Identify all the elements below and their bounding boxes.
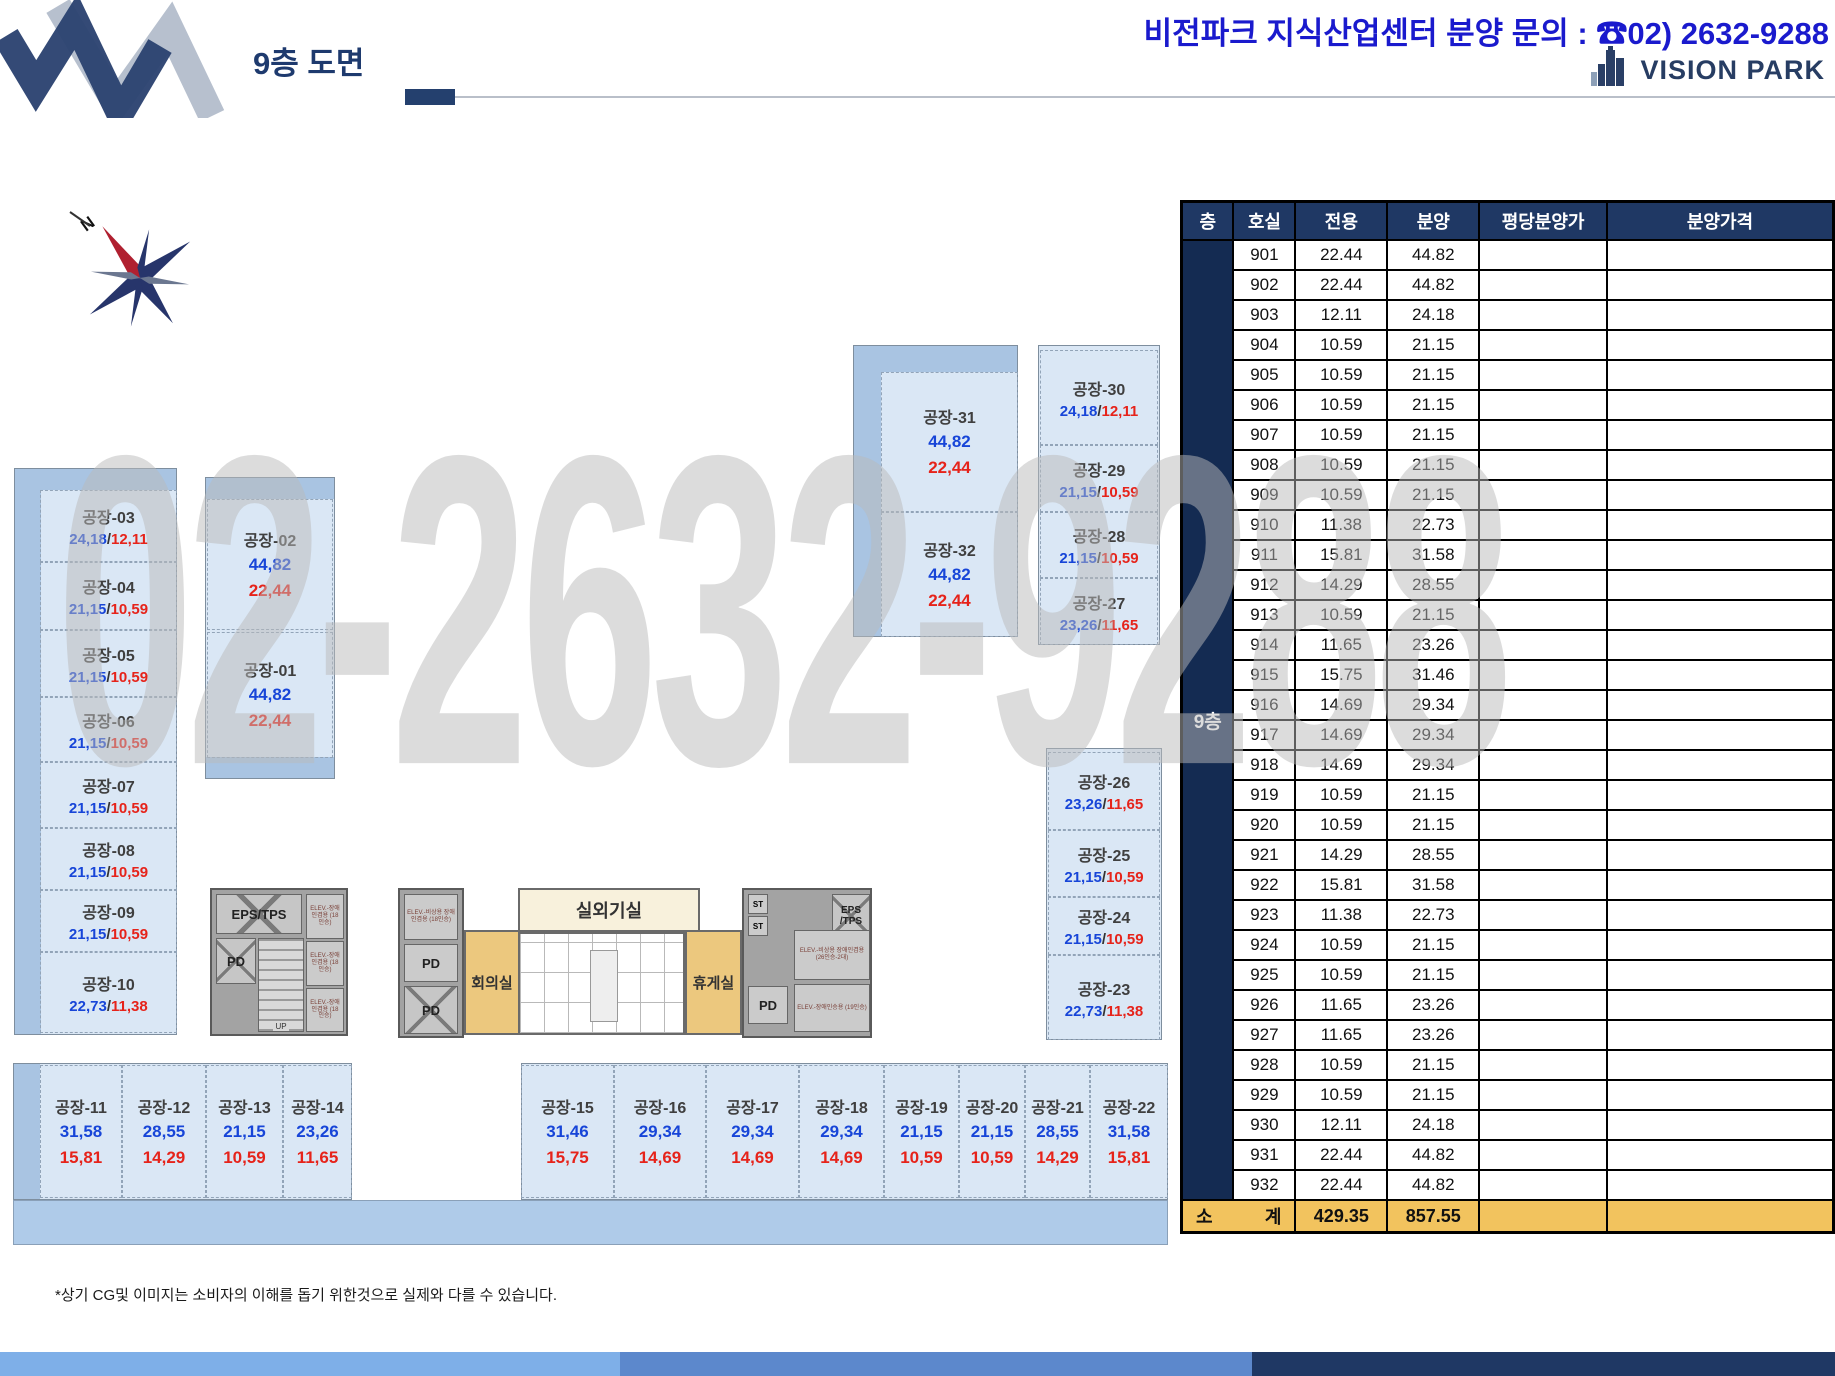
cell-room: 903 bbox=[1233, 300, 1295, 330]
room-supply-area: 21,15 bbox=[223, 1121, 266, 1144]
room-label: 공장-27 bbox=[1073, 590, 1126, 614]
cell-blank bbox=[1479, 990, 1607, 1020]
cell-supply: 31.58 bbox=[1387, 540, 1479, 570]
cell-exclusive: 15.75 bbox=[1295, 660, 1387, 690]
cell-supply: 21.15 bbox=[1387, 480, 1479, 510]
room-label: 공장-15 bbox=[541, 1094, 594, 1118]
table-row: 91814.6929.34 bbox=[1182, 750, 1834, 780]
cell-exclusive: 10.59 bbox=[1295, 780, 1387, 810]
cell-exclusive: 11.65 bbox=[1295, 990, 1387, 1020]
cell-supply: 21.15 bbox=[1387, 390, 1479, 420]
restroom-area bbox=[518, 932, 685, 1035]
room-label: 공장-08 bbox=[82, 837, 135, 861]
room-exclusive-area: 10,59 bbox=[900, 1147, 943, 1170]
cell-exclusive: 10.59 bbox=[1295, 450, 1387, 480]
room-unit-19: 공장-1921,1510,59 bbox=[884, 1065, 959, 1198]
cell-blank bbox=[1479, 330, 1607, 360]
table-row: 93012.1124.18 bbox=[1182, 1110, 1834, 1140]
cell-blank bbox=[1607, 1170, 1834, 1200]
room-exclusive-area: 14,69 bbox=[820, 1147, 863, 1170]
cell-blank bbox=[1607, 780, 1834, 810]
room-label: 공장-14 bbox=[291, 1094, 344, 1118]
room-exclusive-area: 11,65 bbox=[297, 1147, 339, 1170]
cell-supply: 21.15 bbox=[1387, 360, 1479, 390]
cell-room: 905 bbox=[1233, 360, 1295, 390]
room-areas: 21,15/10,59 bbox=[1059, 550, 1138, 567]
table-row: 9층90122.4444.82 bbox=[1182, 240, 1834, 270]
elevator-label: ELEV.-장애인겸용 (18인승) bbox=[307, 904, 343, 929]
cell-exclusive: 14.29 bbox=[1295, 840, 1387, 870]
room-areas: 21,15/10,59 bbox=[69, 601, 148, 618]
total-supply: 857.55 bbox=[1387, 1200, 1479, 1233]
cell-blank bbox=[1607, 690, 1834, 720]
room-unit-08: 공장-0821,15/10,59 bbox=[40, 828, 177, 890]
room-exclusive-area: 10,59 bbox=[223, 1147, 266, 1170]
compass-icon: N bbox=[48, 200, 218, 335]
cell-room: 920 bbox=[1233, 810, 1295, 840]
cell-supply: 21.15 bbox=[1387, 930, 1479, 960]
cell-blank bbox=[1607, 570, 1834, 600]
cell-exclusive: 11.38 bbox=[1295, 900, 1387, 930]
cell-exclusive: 14.69 bbox=[1295, 720, 1387, 750]
cell-blank bbox=[1607, 420, 1834, 450]
room-label: 공장-18 bbox=[815, 1094, 868, 1118]
cell-supply: 44.82 bbox=[1387, 240, 1479, 270]
cell-room: 918 bbox=[1233, 750, 1295, 780]
col-price-per-py: 평당분양가 bbox=[1479, 202, 1607, 241]
cell-supply: 21.15 bbox=[1387, 420, 1479, 450]
room-label: 공장-09 bbox=[82, 899, 135, 923]
room-label: 공장-32 bbox=[923, 537, 976, 561]
table-row: 90910.5921.15 bbox=[1182, 480, 1834, 510]
room-label: 공장-17 bbox=[726, 1094, 779, 1118]
cell-blank bbox=[1607, 540, 1834, 570]
eps-tps-label: EPS/TPS bbox=[232, 907, 287, 922]
cell-room: 927 bbox=[1233, 1020, 1295, 1050]
table-row: 91714.6929.34 bbox=[1182, 720, 1834, 750]
room-supply-area: 21,15 bbox=[971, 1121, 1014, 1144]
room-exclusive-area: 14,69 bbox=[639, 1147, 682, 1170]
bottom-corridor bbox=[13, 1200, 1168, 1245]
room-unit-02: 공장-0244,8222,44 bbox=[207, 499, 333, 630]
cell-room: 931 bbox=[1233, 1140, 1295, 1170]
cell-blank bbox=[1479, 840, 1607, 870]
room-areas: 23,26/11,65 bbox=[1060, 617, 1138, 634]
room-label: 공장-06 bbox=[82, 708, 135, 732]
cell-blank bbox=[1479, 600, 1607, 630]
total-exclusive: 429.35 bbox=[1295, 1200, 1387, 1233]
room-exclusive-area: 14,29 bbox=[1036, 1147, 1079, 1170]
room-areas: 21,15/10,59 bbox=[69, 669, 148, 686]
cell-supply: 28.55 bbox=[1387, 570, 1479, 600]
cell-blank bbox=[1607, 990, 1834, 1020]
room-unit-32: 공장-3244,8222,44 bbox=[881, 512, 1018, 637]
cell-room: 919 bbox=[1233, 780, 1295, 810]
cell-supply: 44.82 bbox=[1387, 1170, 1479, 1200]
cell-blank bbox=[1479, 1080, 1607, 1110]
table-header-row: 층 호실 전용 분양 평당분양가 분양가격 bbox=[1182, 202, 1834, 241]
cell-blank bbox=[1607, 600, 1834, 630]
cell-exclusive: 14.69 bbox=[1295, 690, 1387, 720]
disclaimer-note: *상기 CG및 이미지는 소비자의 이해를 돕기 위한것으로 실제와 다를 수 … bbox=[55, 1284, 557, 1305]
cell-exclusive: 10.59 bbox=[1295, 420, 1387, 450]
room-unit-04: 공장-0421,15/10,59 bbox=[40, 562, 177, 630]
table-row: 90510.5921.15 bbox=[1182, 360, 1834, 390]
cell-exclusive: 12.11 bbox=[1295, 300, 1387, 330]
table-row: 90610.5921.15 bbox=[1182, 390, 1834, 420]
cell-exclusive: 22.44 bbox=[1295, 270, 1387, 300]
room-unit-05: 공장-0521,15/10,59 bbox=[40, 630, 177, 697]
room-unit-16: 공장-1629,3414,69 bbox=[614, 1065, 706, 1198]
meeting-room: 회의실 bbox=[464, 930, 520, 1035]
cell-blank bbox=[1607, 1080, 1834, 1110]
room-exclusive-area: 22,44 bbox=[928, 457, 971, 480]
cell-blank bbox=[1607, 960, 1834, 990]
room-label: 공장-05 bbox=[82, 642, 135, 666]
eps-tps-label: EPS /TPS bbox=[833, 905, 869, 927]
cell-supply: 22.73 bbox=[1387, 900, 1479, 930]
cell-blank bbox=[1607, 840, 1834, 870]
room-label: 공장-02 bbox=[244, 527, 297, 551]
cell-room: 901 bbox=[1233, 240, 1295, 270]
room-unit-27: 공장-2723,26/11,65 bbox=[1040, 578, 1158, 645]
cell-blank bbox=[1607, 1050, 1834, 1080]
pd-label: PD bbox=[422, 1003, 440, 1018]
cell-blank bbox=[1479, 720, 1607, 750]
cell-supply: 23.26 bbox=[1387, 630, 1479, 660]
room-exclusive-area: 22,44 bbox=[928, 590, 971, 613]
room-unit-31: 공장-3144,8222,44 bbox=[881, 372, 1018, 512]
room-unit-21: 공장-2128,5514,29 bbox=[1025, 1065, 1090, 1198]
cell-exclusive: 10.59 bbox=[1295, 810, 1387, 840]
cell-exclusive: 11.38 bbox=[1295, 510, 1387, 540]
room-areas: 21,15/10,59 bbox=[69, 800, 148, 817]
col-floor: 층 bbox=[1182, 202, 1234, 241]
cell-room: 910 bbox=[1233, 510, 1295, 540]
room-areas: 21,15/10,59 bbox=[69, 864, 148, 881]
col-supply: 분양 bbox=[1387, 202, 1479, 241]
cell-blank bbox=[1607, 480, 1834, 510]
table-row: 92711.6523.26 bbox=[1182, 1020, 1834, 1050]
cell-room: 904 bbox=[1233, 330, 1295, 360]
room-label: 공장-24 bbox=[1078, 904, 1131, 928]
table-row: 92215.8131.58 bbox=[1182, 870, 1834, 900]
room-unit-07: 공장-0721,15/10,59 bbox=[40, 762, 177, 828]
elevator-label: ELEV.-장애인겸용 (18인승) bbox=[307, 998, 343, 1023]
cell-supply: 31.46 bbox=[1387, 660, 1479, 690]
cell-blank bbox=[1607, 270, 1834, 300]
elevator-label: ELEV.-비상용 장애인겸용 (18인승) bbox=[405, 908, 457, 926]
cell-supply: 23.26 bbox=[1387, 1020, 1479, 1050]
room-unit-30: 공장-3024,18/12,11 bbox=[1040, 350, 1158, 445]
cell-blank bbox=[1479, 270, 1607, 300]
cell-supply: 21.15 bbox=[1387, 810, 1479, 840]
cell-supply: 28.55 bbox=[1387, 840, 1479, 870]
table-row: 91011.3822.73 bbox=[1182, 510, 1834, 540]
cell-blank bbox=[1607, 1110, 1834, 1140]
room-areas: 21,15/10,59 bbox=[1064, 869, 1143, 886]
cell-blank bbox=[1607, 930, 1834, 960]
cell-exclusive: 15.81 bbox=[1295, 870, 1387, 900]
outdoor-unit-room: 실외기실 bbox=[518, 888, 700, 932]
room-areas: 21,15/10,59 bbox=[69, 926, 148, 943]
total-label: 소계 bbox=[1182, 1200, 1296, 1233]
cell-room: 916 bbox=[1233, 690, 1295, 720]
cell-supply: 44.82 bbox=[1387, 1140, 1479, 1170]
bottom-bar-light bbox=[0, 1352, 620, 1376]
table-row: 91214.2928.55 bbox=[1182, 570, 1834, 600]
room-exclusive-area: 15,81 bbox=[1108, 1147, 1151, 1170]
pd-label: PD bbox=[759, 998, 777, 1013]
st-label: ST bbox=[753, 900, 763, 909]
cell-exclusive: 10.59 bbox=[1295, 330, 1387, 360]
cell-blank bbox=[1607, 510, 1834, 540]
cell-supply: 21.15 bbox=[1387, 600, 1479, 630]
room-label: 공장-26 bbox=[1078, 769, 1131, 793]
cell-room: 906 bbox=[1233, 390, 1295, 420]
stairs-up-label: UP bbox=[273, 1022, 288, 1031]
cell-exclusive: 11.65 bbox=[1295, 1020, 1387, 1050]
core-left: EPS/TPS PD UP ELEV.-장애인겸용 (18인승) ELEV.-장… bbox=[210, 888, 348, 1036]
cell-blank bbox=[1607, 630, 1834, 660]
table-row: 93222.4444.82 bbox=[1182, 1170, 1834, 1200]
cell-blank bbox=[1479, 900, 1607, 930]
cell-supply: 44.82 bbox=[1387, 270, 1479, 300]
room-areas: 24,18/12,11 bbox=[1060, 403, 1138, 420]
cell-room: 922 bbox=[1233, 870, 1295, 900]
cell-blank bbox=[1607, 1140, 1834, 1170]
room-areas: 22,73/11,38 bbox=[69, 998, 147, 1015]
room-label: 공장-13 bbox=[218, 1094, 271, 1118]
core-mid-left: ELEV.-비상용 장애인겸용 (18인승) PD PD bbox=[398, 888, 464, 1038]
cell-blank bbox=[1479, 540, 1607, 570]
st-label: ST bbox=[753, 922, 763, 931]
room-unit-14: 공장-1423,2611,65 bbox=[283, 1065, 352, 1198]
room-areas: 21,15/10,59 bbox=[1064, 931, 1143, 948]
cell-blank bbox=[1479, 1140, 1607, 1170]
cell-blank bbox=[1479, 360, 1607, 390]
cell-supply: 22.73 bbox=[1387, 510, 1479, 540]
cell-supply: 21.15 bbox=[1387, 450, 1479, 480]
room-supply-area: 29,34 bbox=[820, 1121, 863, 1144]
cell-blank bbox=[1479, 810, 1607, 840]
cell-room: 915 bbox=[1233, 660, 1295, 690]
room-supply-area: 21,15 bbox=[900, 1121, 943, 1144]
title-rule bbox=[408, 96, 1835, 98]
bottom-bar-medium bbox=[620, 1352, 1252, 1376]
total-blank bbox=[1479, 1200, 1607, 1233]
cell-exclusive: 10.59 bbox=[1295, 360, 1387, 390]
table-row: 91910.5921.15 bbox=[1182, 780, 1834, 810]
room-supply-area: 29,34 bbox=[731, 1121, 774, 1144]
table-row: 90710.5921.15 bbox=[1182, 420, 1834, 450]
table-row: 92810.5921.15 bbox=[1182, 1050, 1834, 1080]
cell-blank bbox=[1479, 390, 1607, 420]
table-row: 91310.5921.15 bbox=[1182, 600, 1834, 630]
cell-blank bbox=[1479, 1110, 1607, 1140]
room-supply-area: 44,82 bbox=[249, 554, 292, 577]
table-row: 92010.5921.15 bbox=[1182, 810, 1834, 840]
cell-blank bbox=[1479, 1020, 1607, 1050]
cell-room: 929 bbox=[1233, 1080, 1295, 1110]
cell-blank bbox=[1479, 870, 1607, 900]
room-supply-area: 31,58 bbox=[60, 1121, 103, 1144]
room-areas: 23,26/11,65 bbox=[1065, 796, 1143, 813]
cell-blank bbox=[1479, 1170, 1607, 1200]
room-label: 공장-10 bbox=[82, 971, 135, 995]
table-row: 90410.5921.15 bbox=[1182, 330, 1834, 360]
cell-supply: 24.18 bbox=[1387, 1110, 1479, 1140]
cell-blank bbox=[1607, 900, 1834, 930]
room-exclusive-area: 14,69 bbox=[731, 1147, 774, 1170]
brand-name: VISION PARK bbox=[1640, 55, 1825, 86]
cell-room: 932 bbox=[1233, 1170, 1295, 1200]
table-row: 93122.4444.82 bbox=[1182, 1140, 1834, 1170]
room-unit-23: 공장-2322,73/11,38 bbox=[1048, 955, 1160, 1040]
table-row: 92410.5921.15 bbox=[1182, 930, 1834, 960]
cell-blank bbox=[1607, 330, 1834, 360]
col-sale-price: 분양가격 bbox=[1607, 202, 1834, 241]
cell-blank bbox=[1479, 660, 1607, 690]
cell-blank bbox=[1479, 930, 1607, 960]
cell-exclusive: 10.59 bbox=[1295, 1080, 1387, 1110]
cell-supply: 31.58 bbox=[1387, 870, 1479, 900]
cell-room: 913 bbox=[1233, 600, 1295, 630]
room-areas: 24,18/12,11 bbox=[69, 531, 147, 548]
floor-cell: 9층 bbox=[1182, 240, 1234, 1200]
room-exclusive-area: 22,44 bbox=[249, 710, 292, 733]
cell-supply: 29.34 bbox=[1387, 720, 1479, 750]
cell-exclusive: 10.59 bbox=[1295, 960, 1387, 990]
room-exclusive-area: 10,59 bbox=[971, 1147, 1014, 1170]
cell-room: 908 bbox=[1233, 450, 1295, 480]
room-supply-area: 28,55 bbox=[1036, 1121, 1079, 1144]
cell-blank bbox=[1479, 480, 1607, 510]
table-row: 91115.8131.58 bbox=[1182, 540, 1834, 570]
table-row: 90810.5921.15 bbox=[1182, 450, 1834, 480]
cell-room: 914 bbox=[1233, 630, 1295, 660]
cell-room: 930 bbox=[1233, 1110, 1295, 1140]
cell-exclusive: 22.44 bbox=[1295, 1170, 1387, 1200]
cell-supply: 21.15 bbox=[1387, 960, 1479, 990]
room-label: 공장-11 bbox=[55, 1094, 107, 1118]
room-unit-18: 공장-1829,3414,69 bbox=[799, 1065, 884, 1198]
room-unit-25: 공장-2521,15/10,59 bbox=[1048, 830, 1160, 897]
elevator-label: ELEV.-장애인승용 (19인승) bbox=[795, 1003, 868, 1014]
room-label: 공장-23 bbox=[1078, 976, 1131, 1000]
total-blank bbox=[1607, 1200, 1834, 1233]
bottom-bar-dark bbox=[1252, 1352, 1835, 1376]
room-unit-12: 공장-1228,5514,29 bbox=[122, 1065, 206, 1198]
page-title: 9층 도면 bbox=[253, 38, 364, 83]
room-unit-17: 공장-1729,3414,69 bbox=[706, 1065, 799, 1198]
room-label: 공장-28 bbox=[1073, 523, 1126, 547]
cell-blank bbox=[1607, 1020, 1834, 1050]
cell-room: 911 bbox=[1233, 540, 1295, 570]
room-label: 공장-25 bbox=[1078, 842, 1131, 866]
table-row: 91515.7531.46 bbox=[1182, 660, 1834, 690]
cell-blank bbox=[1479, 750, 1607, 780]
cell-supply: 29.34 bbox=[1387, 690, 1479, 720]
cell-room: 912 bbox=[1233, 570, 1295, 600]
room-unit-26: 공장-2623,26/11,65 bbox=[1048, 752, 1160, 830]
title-rule-dash bbox=[405, 89, 455, 105]
room-supply-area: 23,26 bbox=[296, 1121, 339, 1144]
room-unit-11: 공장-1131,5815,81 bbox=[40, 1065, 122, 1198]
cell-supply: 21.15 bbox=[1387, 330, 1479, 360]
cell-blank bbox=[1607, 390, 1834, 420]
room-exclusive-area: 15,75 bbox=[546, 1147, 589, 1170]
cell-room: 926 bbox=[1233, 990, 1295, 1020]
room-unit-03: 공장-0324,18/12,11 bbox=[40, 490, 177, 562]
cell-exclusive: 10.59 bbox=[1295, 930, 1387, 960]
room-supply-area: 29,34 bbox=[639, 1121, 682, 1144]
room-unit-22: 공장-2231,5815,81 bbox=[1090, 1065, 1168, 1198]
room-exclusive-area: 22,44 bbox=[249, 580, 292, 603]
room-unit-01: 공장-0144,8222,44 bbox=[207, 632, 333, 758]
room-label: 공장-20 bbox=[966, 1094, 1019, 1118]
cell-blank bbox=[1479, 240, 1607, 270]
cell-blank bbox=[1479, 960, 1607, 990]
core-right: ST ST EPS /TPS ELEV.-비상용 장애인겸용 (26인승-2대)… bbox=[742, 888, 872, 1038]
cell-blank bbox=[1479, 570, 1607, 600]
table-row: 91614.6929.34 bbox=[1182, 690, 1834, 720]
cell-blank bbox=[1479, 1050, 1607, 1080]
table-row: 92910.5921.15 bbox=[1182, 1080, 1834, 1110]
cell-blank bbox=[1479, 780, 1607, 810]
cell-exclusive: 14.29 bbox=[1295, 570, 1387, 600]
room-unit-09: 공장-0921,15/10,59 bbox=[40, 890, 177, 952]
cell-supply: 24.18 bbox=[1387, 300, 1479, 330]
cell-exclusive: 14.69 bbox=[1295, 750, 1387, 780]
table-row: 92510.5921.15 bbox=[1182, 960, 1834, 990]
logo-zigzag-icon bbox=[0, 0, 235, 118]
cell-blank bbox=[1607, 810, 1834, 840]
cell-room: 924 bbox=[1233, 930, 1295, 960]
table-total-row: 소계 429.35 857.55 bbox=[1182, 1200, 1834, 1233]
room-areas: 21,15/10,59 bbox=[69, 735, 148, 752]
cell-room: 923 bbox=[1233, 900, 1295, 930]
room-areas: 21,15/10,59 bbox=[1059, 484, 1138, 501]
room-exclusive-area: 15,81 bbox=[60, 1147, 103, 1170]
room-unit-28: 공장-2821,15/10,59 bbox=[1040, 512, 1158, 578]
room-unit-13: 공장-1321,1510,59 bbox=[206, 1065, 283, 1198]
building-icon bbox=[1589, 46, 1631, 86]
cell-blank bbox=[1607, 720, 1834, 750]
cell-exclusive: 22.44 bbox=[1295, 1140, 1387, 1170]
col-exclusive: 전용 bbox=[1295, 202, 1387, 241]
cell-blank bbox=[1479, 420, 1607, 450]
cell-room: 928 bbox=[1233, 1050, 1295, 1080]
cell-blank bbox=[1607, 750, 1834, 780]
room-unit-29: 공장-2921,15/10,59 bbox=[1040, 445, 1158, 512]
room-label: 공장-07 bbox=[82, 773, 135, 797]
table-row: 90222.4444.82 bbox=[1182, 270, 1834, 300]
room-exclusive-area: 14,29 bbox=[143, 1147, 186, 1170]
cell-supply: 23.26 bbox=[1387, 990, 1479, 1020]
cell-exclusive: 12.11 bbox=[1295, 1110, 1387, 1140]
cell-room: 925 bbox=[1233, 960, 1295, 990]
room-unit-10: 공장-1022,73/11,38 bbox=[40, 952, 177, 1033]
cell-blank bbox=[1607, 300, 1834, 330]
elevator-label: ELEV.-비상용 장애인겸용 (26인승-2대) bbox=[795, 946, 869, 964]
cell-exclusive: 11.65 bbox=[1295, 630, 1387, 660]
cell-room: 917 bbox=[1233, 720, 1295, 750]
table-row: 91411.6523.26 bbox=[1182, 630, 1834, 660]
room-label: 공장-16 bbox=[634, 1094, 687, 1118]
cell-blank bbox=[1607, 870, 1834, 900]
table-row: 92114.2928.55 bbox=[1182, 840, 1834, 870]
